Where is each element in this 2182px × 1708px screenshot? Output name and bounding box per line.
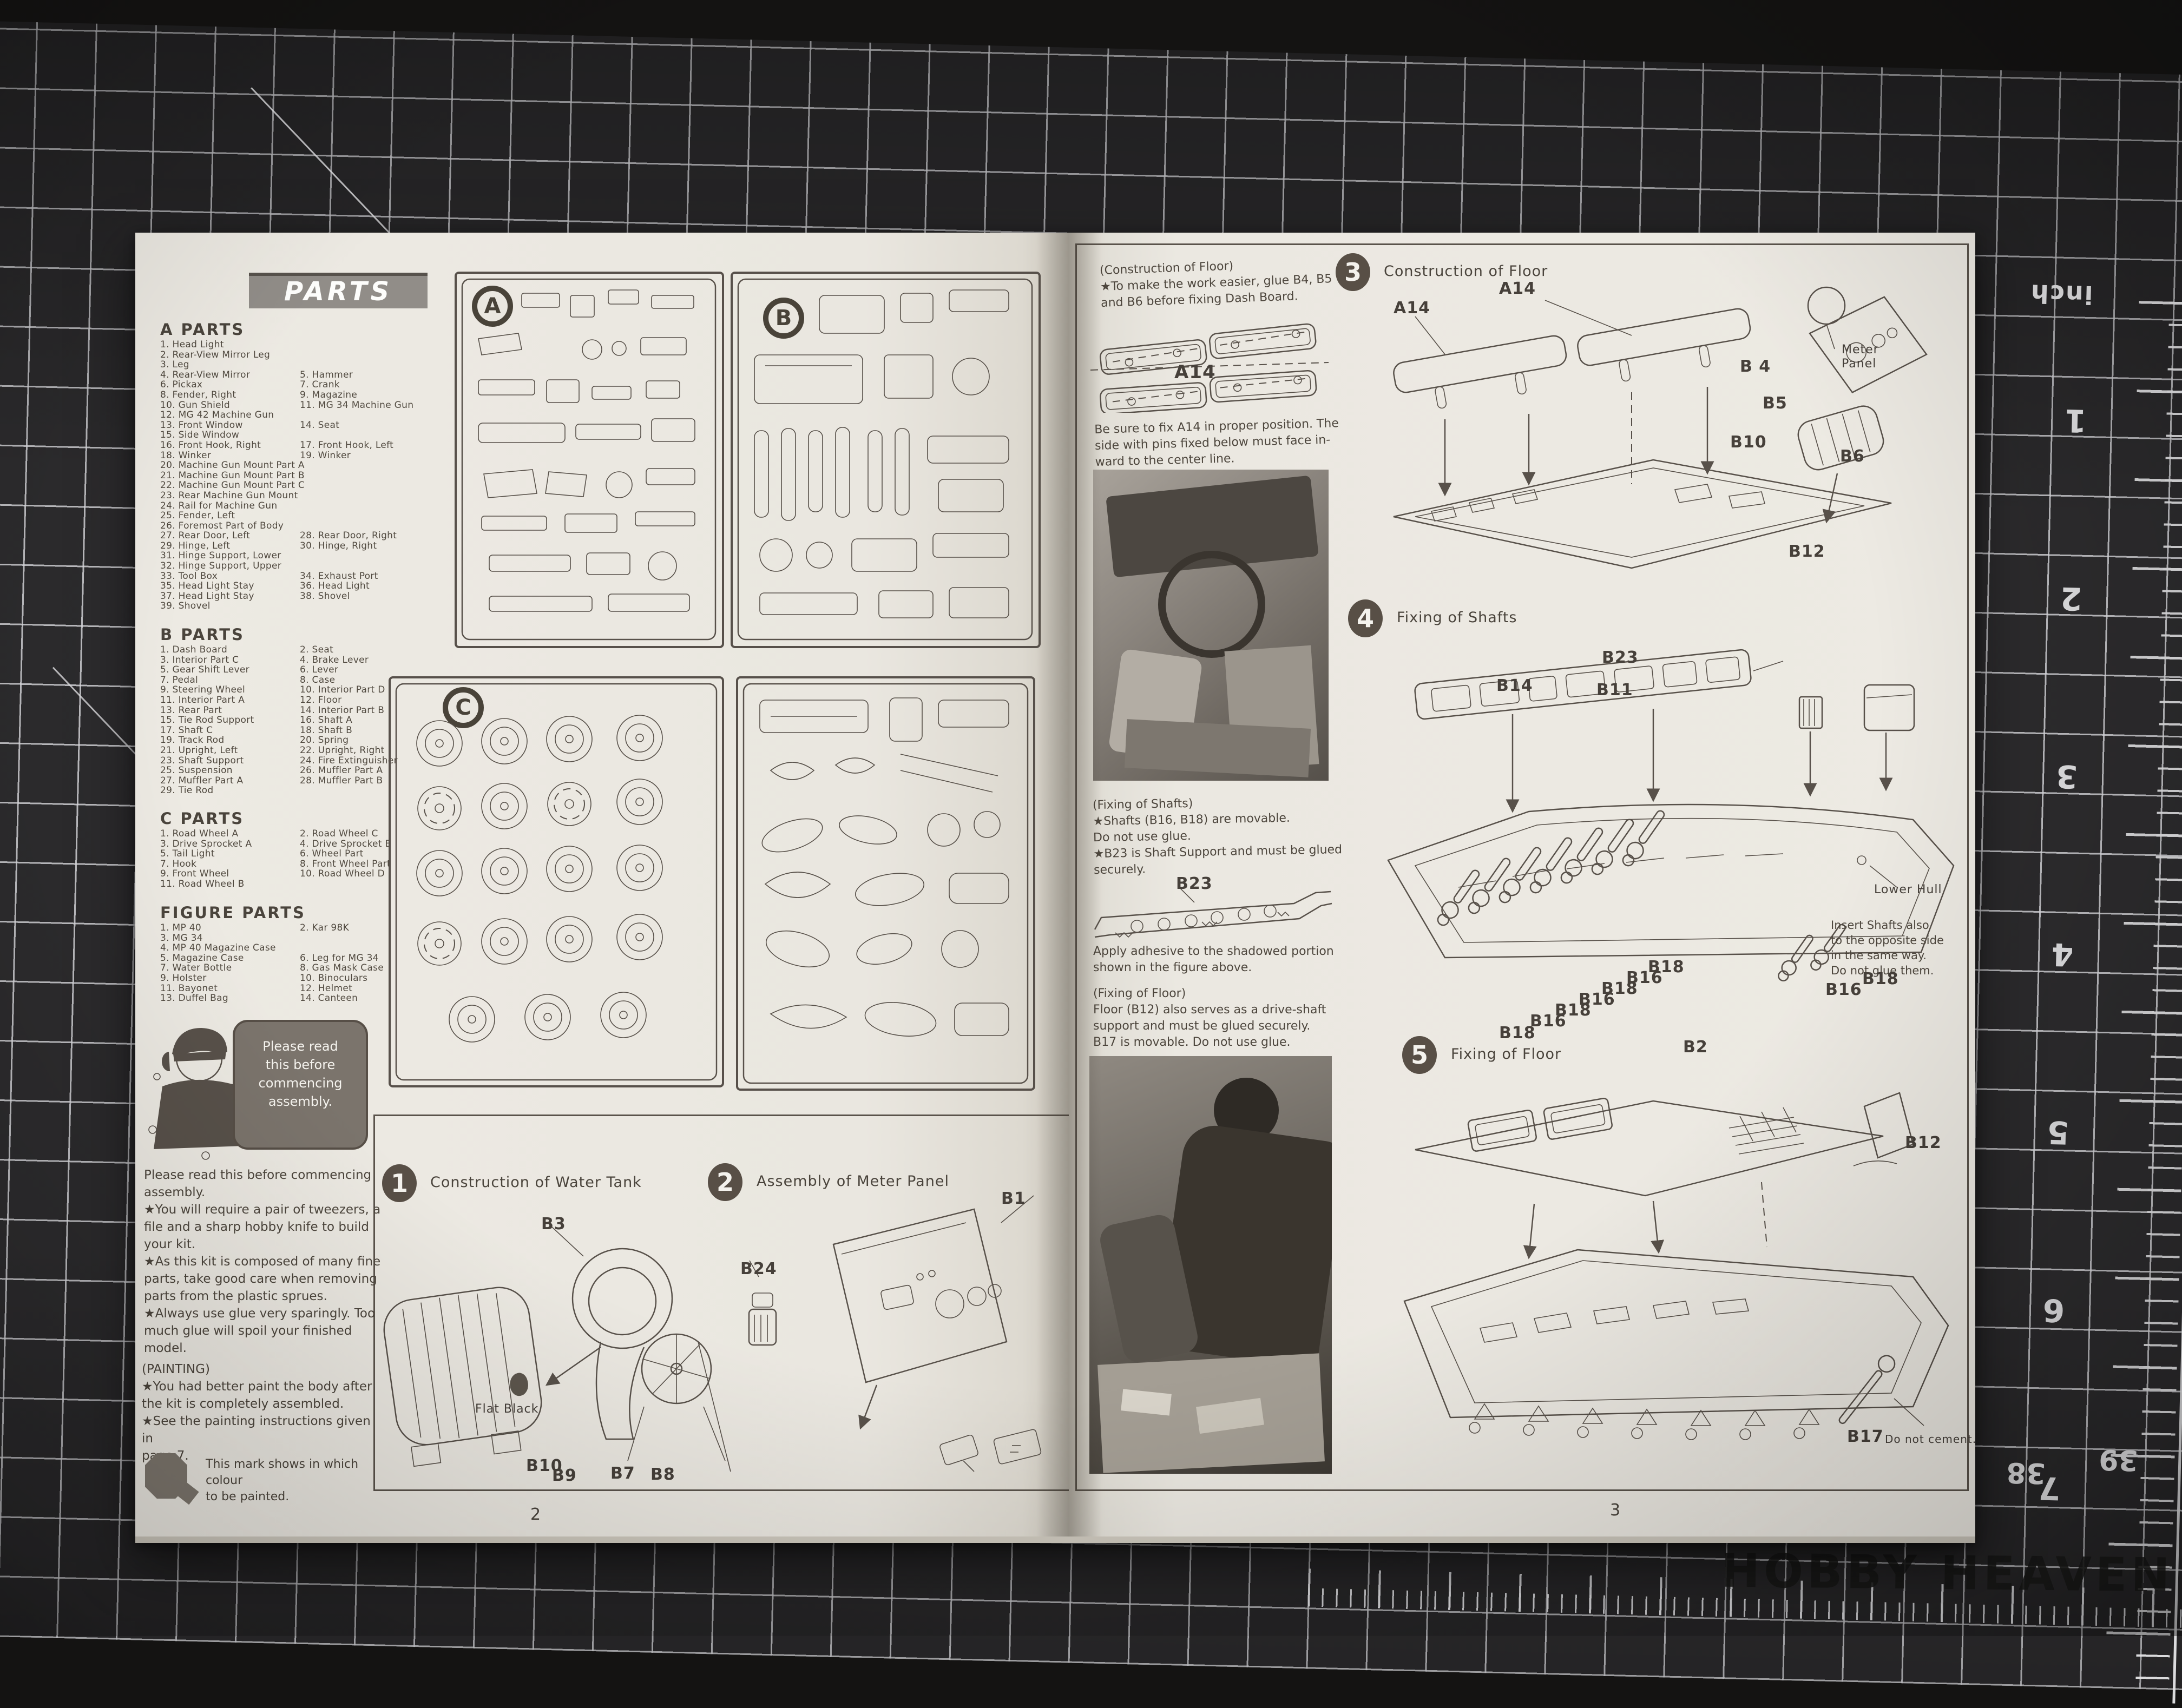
photo-steering-wheel-shape — [1158, 551, 1265, 658]
step-1-title: Construction of Water Tank — [430, 1174, 642, 1191]
intro-line: Please read this before commencing — [144, 1166, 382, 1184]
parts-row: 3. Interior Part C4. Brake Lever — [160, 655, 463, 665]
part-label-b3: B3 — [541, 1215, 566, 1234]
step-5-title: Fixing of Floor — [1451, 1046, 1561, 1063]
note-line: Floor (B12) also serves as a drive-shaft — [1093, 1002, 1348, 1018]
note-line: support and must be glued securely. — [1093, 1018, 1348, 1034]
page-number-right: 3 — [1610, 1501, 1620, 1520]
intro-note: Please read this before commencingassemb… — [144, 1166, 382, 1357]
parts-banner: PARTS — [249, 273, 428, 308]
paint-mark-note: This mark shows in which colourto be pai… — [206, 1456, 384, 1505]
ruler-number: 2 — [2004, 508, 2138, 689]
step-3-badge: 3 — [1336, 253, 1370, 291]
step3-label-b5: B5 — [1763, 394, 1787, 413]
section-title-a-parts: A PARTS — [160, 320, 245, 339]
part-label-b7: B7 — [610, 1464, 635, 1483]
step4-label-b23: B23 — [1602, 648, 1639, 667]
parts-row: 12. MG 42 Machine Gun — [160, 410, 463, 420]
parts-row: 37. Head Light Stay38. Shovel — [160, 591, 463, 602]
page-2: PARTS A PARTS 1. Head Light2. Rear-View … — [135, 233, 1069, 1536]
bubble-line: this before — [235, 1056, 366, 1074]
note-line: (Fixing of Floor) — [1093, 986, 1348, 1002]
note-line: Do not glue them. — [1831, 963, 1966, 978]
intro-line: ★Always use glue very sparingly. Too — [144, 1305, 382, 1322]
parts-row: 23. Rear Machine Gun Mount — [160, 491, 463, 501]
part-label-b24: B24 — [740, 1259, 777, 1278]
parts-row: 26. Foremost Part of Body — [160, 521, 463, 531]
intro-line: your kit. — [144, 1236, 382, 1253]
parts-row: 22. Machine Gun Mount Part C — [160, 480, 463, 491]
note-line: in the same way. — [1831, 948, 1966, 963]
parts-row: 16. Front Hook, Right17. Front Hook, Lef… — [160, 440, 463, 451]
ruler-number: 3 — [2000, 686, 2134, 867]
ruler-number: 5 — [1991, 1042, 2125, 1223]
photo-dashboard-interior — [1093, 470, 1329, 781]
step4-label-b11: B11 — [1596, 681, 1633, 700]
step3-label-b6: B6 — [1840, 447, 1865, 466]
a14-position-note: Be sure to fix A14 in proper position. T… — [1094, 416, 1344, 471]
parts-row: 31. Hinge Support, Lower — [160, 551, 463, 561]
parts-row: 21. Machine Gun Mount Part B — [160, 471, 463, 481]
step-3-diagram — [1350, 284, 1967, 614]
a-parts-list: 1. Head Light2. Rear-View Mirror Leg3. L… — [160, 340, 463, 611]
parts-row: 32. Hinge Support, Upper — [160, 561, 463, 571]
step-5-badge: 5 — [1402, 1036, 1437, 1074]
fixing-of-floor-note: (Fixing of Floor)Floor (B12) also serves… — [1093, 986, 1348, 1051]
intro-line: ★You will require a pair of tweezers, a — [144, 1201, 382, 1218]
section-title-figure-parts: FIGURE PARTS — [160, 904, 306, 922]
bubble-line: assembly. — [235, 1092, 366, 1111]
step4-label-lower-hull: Lower Hull — [1874, 883, 1942, 896]
ruler-unit-label: inch — [2029, 279, 2093, 309]
intro-line: parts from the plastic sprues. — [144, 1288, 382, 1305]
step-5-diagram — [1350, 1069, 1967, 1477]
note-line: Insert Shafts also — [1831, 918, 1966, 933]
mat-edge-number: 38 — [2006, 1456, 2046, 1489]
intro-line: assembly. — [144, 1184, 382, 1201]
section-title-c-parts: C PARTS — [160, 809, 244, 828]
paint-mark-line: to be painted. — [206, 1489, 384, 1505]
step5-label-b17: B17 — [1847, 1427, 1884, 1446]
parts-row: 1. Dash Board2. Seat — [160, 645, 463, 655]
painting-line: (PAINTING) — [142, 1361, 385, 1378]
parts-row: 39. Shovel — [160, 601, 463, 611]
parts-row: 2. Rear-View Mirror Leg — [160, 350, 463, 360]
intro-line: ★As this kit is composed of many fine — [144, 1253, 382, 1270]
painting-note: (PAINTING)★You had better paint the body… — [142, 1361, 385, 1465]
parts-row: 1. Head Light — [160, 340, 463, 350]
note-line: to the opposite side — [1831, 933, 1966, 948]
parts-row: 13. Front Window14. Seat — [160, 420, 463, 431]
step5-label-b12: B12 — [1905, 1133, 1942, 1152]
page-3: (Construction of Floor)★To make the work… — [1069, 233, 1975, 1536]
step3-label-b4: B 4 — [1740, 357, 1771, 376]
sprue-c-diagram — [391, 678, 722, 1085]
parts-row: 29. Hinge, Left30. Hinge, Right — [160, 541, 463, 551]
parts-row: 18. Winker19. Winker — [160, 451, 463, 461]
step-1-badge: 1 — [382, 1164, 417, 1202]
watermark-text: HOBBY HEAVEN — [1720, 1544, 2173, 1603]
parts-row: 4. Rear-View Mirror5. Hammer — [160, 370, 463, 380]
sprue-b-diagram — [733, 274, 1039, 646]
step3-label-a14-right: A14 — [1499, 279, 1536, 298]
speech-door-panel: Please readthis beforecommencingassembly… — [233, 1020, 368, 1150]
parts-row: 15. Side Window — [160, 430, 463, 440]
parts-row: 5. Gear Shift Lever6. Lever — [160, 665, 463, 675]
insert-shafts-note: Insert Shafts alsoto the opposite sidein… — [1831, 918, 1966, 978]
step3-label-b12: B12 — [1789, 542, 1825, 561]
parts-row: 20. Machine Gun Mount Part A — [160, 460, 463, 471]
paint-mark-line: This mark shows in which colour — [206, 1456, 384, 1489]
step-2-badge: 2 — [708, 1163, 742, 1201]
parts-row: 24. Rail for Machine Gun — [160, 501, 463, 511]
parts-row: 6. Pickax7. Crank — [160, 380, 463, 390]
construction-of-floor-note: (Construction of Floor)★To make the work… — [1100, 254, 1350, 312]
step-3-title: Construction of Floor — [1384, 263, 1548, 280]
page-number-left: 2 — [530, 1505, 541, 1524]
step3-label-meter-panel: Meter Panel — [1842, 343, 1912, 371]
sprue-panel-a: A — [455, 272, 724, 648]
parts-row: 8. Fender, Right9. Magazine — [160, 390, 463, 400]
parts-row: 25. Fender, Left — [160, 511, 463, 521]
part-label-b9: B9 — [552, 1466, 577, 1485]
intro-line: parts, take good care when removing — [144, 1270, 382, 1288]
mat-edge-number: 39 — [2099, 1443, 2139, 1476]
step5-b17-note: Do not cement. — [1885, 1433, 1975, 1446]
sprue-panel-figures — [736, 676, 1035, 1091]
a14-caption: A14 — [1174, 361, 1216, 383]
intro-line: much glue will spoil your finished model… — [144, 1322, 382, 1357]
section-title-b-parts: B PARTS — [160, 625, 245, 644]
sprue-panel-c: C — [389, 676, 724, 1087]
part-label-b1: B1 — [1001, 1189, 1026, 1208]
step-4-title: Fixing of Shafts — [1397, 609, 1517, 626]
step3-label-b10: B10 — [1730, 433, 1767, 452]
step-4-diagram — [1350, 633, 1967, 1050]
parts-row: 35. Head Light Stay36. Head Light — [160, 581, 463, 591]
parts-row: 33. Tool Box34. Exhaust Port — [160, 571, 463, 582]
painting-line: ★You had better paint the body after — [142, 1378, 385, 1395]
note-line: B17 is movable. Do not use glue. — [1093, 1034, 1348, 1051]
bubble-lines: Please readthis beforecommencingassembly… — [235, 1037, 366, 1111]
step5-label-b2: B2 — [1683, 1038, 1708, 1057]
b23-side-diagram — [1088, 887, 1335, 941]
note-line: shown in the figure above. — [1093, 960, 1342, 976]
fixing-of-shafts-note: (Fixing of Shafts)★Shafts (B16, B18) are… — [1093, 793, 1349, 879]
instruction-booklet: PARTS A PARTS 1. Head Light2. Rear-View … — [135, 233, 1975, 1543]
step-4-badge: 4 — [1348, 599, 1383, 637]
photo-of-instruction-manual: { "watermark": "HOBBY HEAVEN", "mat": { … — [0, 0, 2182, 1636]
intro-line: file and a sharp hobby knife to build — [144, 1218, 382, 1236]
apply-adhesive-note: Apply adhesive to the shadowed portionsh… — [1093, 944, 1342, 976]
step3-label-a14-left: A14 — [1394, 299, 1430, 318]
b23-caption: B23 — [1176, 874, 1213, 893]
parts-row: 10. Gun Shield11. MG 34 Machine Gun — [160, 400, 463, 411]
ruler-number: 6 — [1987, 1220, 2121, 1401]
sprue-a-diagram — [457, 274, 722, 646]
photo-shadow-shape — [1125, 719, 1311, 777]
paint-color-label: Flat Black — [475, 1402, 538, 1416]
painting-line: ★See the painting instructions given in — [142, 1413, 385, 1447]
part-label-b8: B8 — [650, 1465, 675, 1484]
note-line: Apply adhesive to the shadowed portion — [1093, 944, 1342, 960]
painting-line: the kit is completely assembled. — [142, 1395, 385, 1413]
step4-label-b14: B14 — [1496, 676, 1533, 695]
sprue-figures-diagram — [738, 678, 1033, 1089]
step-2-title: Assembly of Meter Panel — [757, 1173, 949, 1190]
sprue-panel-b: B — [731, 272, 1041, 648]
parts-row: 3. Leg — [160, 360, 463, 370]
bubble-line: Please read — [235, 1037, 366, 1056]
paint-mark-row: This mark shows in which colourto be pai… — [137, 1453, 386, 1513]
photo-modeler-working — [1089, 1056, 1332, 1474]
bubble-line: commencing — [235, 1074, 366, 1092]
ruler-number: 4 — [1995, 864, 2130, 1045]
parts-row: 27. Rear Door, Left28. Rear Door, Right — [160, 531, 463, 541]
ruler-number: 1 — [2008, 330, 2142, 511]
